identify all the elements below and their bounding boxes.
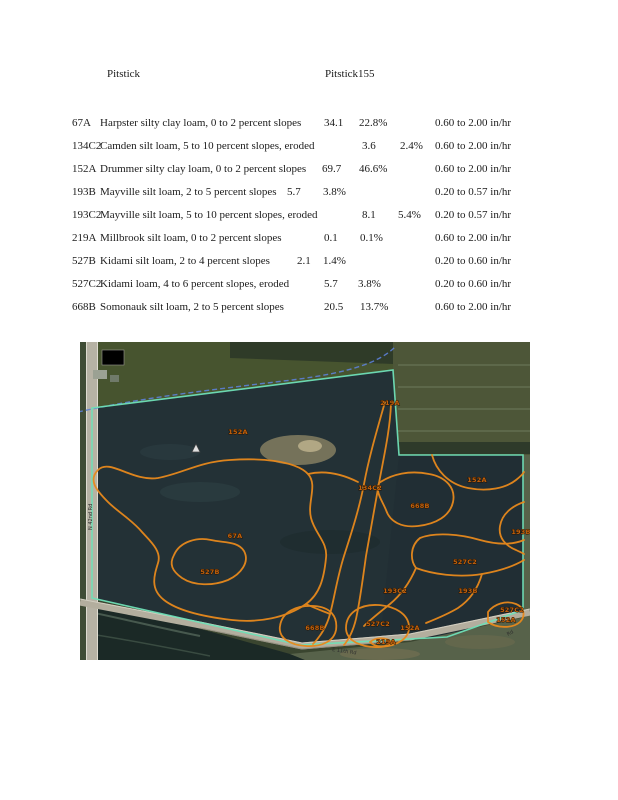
row-acres: 2.1	[297, 255, 311, 267]
table-row: 527BKidami silt loam, 2 to 4 percent slo…	[0, 255, 618, 278]
row-rate: 0.20 to 0.57 in/hr	[435, 209, 511, 221]
table-row: 193C2Mayville silt loam, 5 to 10 percent…	[0, 209, 618, 232]
row-rate: 0.20 to 0.60 in/hr	[435, 278, 511, 290]
soil-code-label: 67A	[228, 532, 243, 540]
row-acres: 5.7	[324, 278, 338, 290]
row-acres: 34.1	[324, 117, 343, 129]
row-description: Camden silt loam, 5 to 10 percent slopes…	[100, 140, 314, 152]
row-percent: 3.8%	[358, 278, 381, 290]
soil-code-label: 527B	[200, 568, 219, 576]
row-code: 527B	[72, 255, 96, 267]
row-acres: 69.7	[322, 163, 341, 175]
row-code: 668B	[72, 301, 96, 313]
row-code: 219A	[72, 232, 96, 244]
field-name: Pitstick	[107, 68, 140, 80]
road-label-left: N 42nd Rd	[88, 504, 94, 530]
row-percent: 1.4%	[323, 255, 346, 267]
row-percent: 5.4%	[398, 209, 421, 221]
row-percent: 2.4%	[400, 140, 423, 152]
row-code: 527C2	[72, 278, 101, 290]
row-code: 67A	[72, 117, 91, 129]
row-percent: 13.7%	[360, 301, 388, 313]
row-rate: 0.60 to 2.00 in/hr	[435, 117, 511, 129]
row-acres: 20.5	[324, 301, 343, 313]
row-rate: 0.60 to 2.00 in/hr	[435, 140, 511, 152]
row-code: 193C2	[72, 209, 101, 221]
table-row: 67AHarpster silty clay loam, 0 to 2 perc…	[0, 117, 618, 140]
soil-code-label: 193B	[458, 587, 477, 595]
table-row: 668BSomonauk silt loam, 2 to 5 percent s…	[0, 301, 618, 324]
table-row: 134C2Camden silt loam, 5 to 10 percent s…	[0, 140, 618, 163]
soil-map: N 42nd Rd E 11th Rd Rd 152A219A134C2668B…	[80, 342, 530, 660]
row-code: 193B	[72, 186, 96, 198]
row-percent: 0.1%	[360, 232, 383, 244]
row-description: Somonauk silt loam, 2 to 5 percent slope…	[100, 301, 284, 313]
soil-code-label: 152A	[400, 624, 419, 632]
table-row: 193BMayville silt loam, 2 to 5 percent s…	[0, 186, 618, 209]
row-description: Harpster silty clay loam, 0 to 2 percent…	[100, 117, 301, 129]
field-id: Pitstick155	[325, 68, 375, 80]
row-description: Millbrook silt loam, 0 to 2 percent slop…	[100, 232, 281, 244]
soil-code-label: 193C2	[383, 587, 407, 595]
row-description: Mayville silt loam, 5 to 10 percent slop…	[100, 209, 318, 221]
row-description: Kidami loam, 4 to 6 percent slopes, erod…	[100, 278, 289, 290]
row-description: Mayville silt loam, 2 to 5 percent slope…	[100, 186, 277, 198]
row-acres: 0.1	[324, 232, 338, 244]
row-description: Drummer silty clay loam, 0 to 2 percent …	[100, 163, 306, 175]
soil-code-label: 527C2	[453, 558, 477, 566]
row-code: 134C2	[72, 140, 101, 152]
row-description: Kidami silt loam, 2 to 4 percent slopes	[100, 255, 270, 267]
soil-code-label: 527C2	[500, 606, 524, 614]
soil-code-label: 152A	[496, 616, 515, 624]
table-row: 219AMillbrook silt loam, 0 to 2 percent …	[0, 232, 618, 255]
soil-code-label: 152A	[228, 428, 247, 436]
soil-code-label: 152A	[467, 476, 486, 484]
row-rate: 0.60 to 2.00 in/hr	[435, 301, 511, 313]
soil-code-label: 527C2	[366, 620, 390, 628]
row-acres: 3.6	[362, 140, 376, 152]
soil-code-label: 219A	[380, 399, 399, 407]
soil-code-label: 134C2	[358, 484, 382, 492]
row-rate: 0.60 to 2.00 in/hr	[435, 232, 511, 244]
row-rate: 0.60 to 2.00 in/hr	[435, 163, 511, 175]
row-rate: 0.20 to 0.57 in/hr	[435, 186, 511, 198]
soil-code-label: 668B	[305, 624, 324, 632]
soil-code-label: 193B	[511, 528, 530, 536]
table-row: 152ADrummer silty clay loam, 0 to 2 perc…	[0, 163, 618, 186]
row-acres: 8.1	[362, 209, 376, 221]
report-page: Pitstick Pitstick155 67AHarpster silty c…	[0, 0, 618, 800]
table-row: 527C2Kidami loam, 4 to 6 percent slopes,…	[0, 278, 618, 301]
soil-code-label: 668B	[410, 502, 429, 510]
soil-code-label: 219A	[376, 638, 395, 646]
row-percent: 46.6%	[359, 163, 387, 175]
row-acres: 5.7	[287, 186, 301, 198]
row-code: 152A	[72, 163, 96, 175]
row-rate: 0.20 to 0.60 in/hr	[435, 255, 511, 267]
soil-map-svg: N 42nd Rd E 11th Rd Rd 152A219A134C2668B…	[80, 342, 530, 660]
row-percent: 3.8%	[323, 186, 346, 198]
row-percent: 22.8%	[359, 117, 387, 129]
